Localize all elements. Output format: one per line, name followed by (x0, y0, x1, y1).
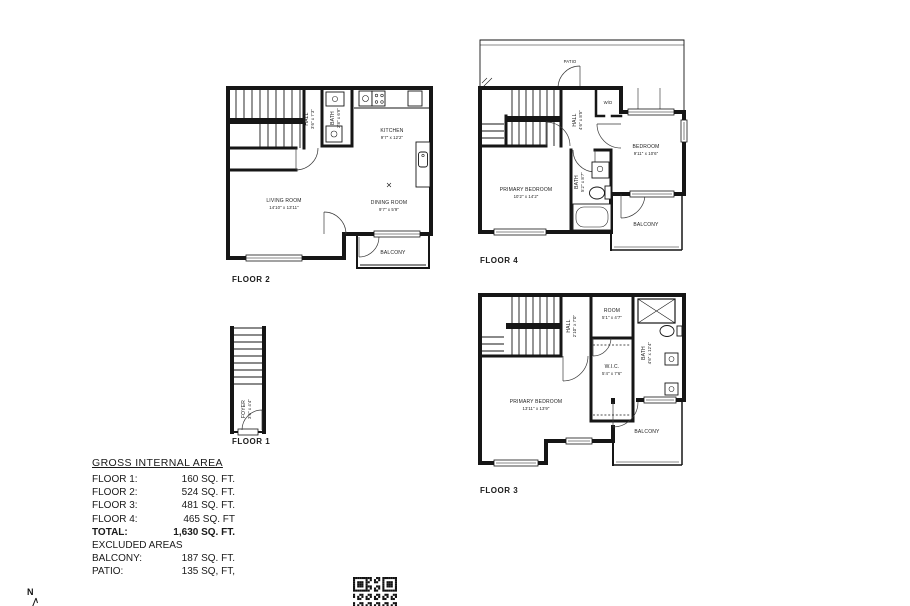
north-label: N (27, 587, 34, 597)
floor2-dining-room-dims: 9'7" x 5'9" (379, 207, 399, 212)
gross-internal-area-table: GROSS INTERNAL AREA FLOOR 1: 160 SQ. FT.… (92, 457, 235, 579)
area-row-value: 481 SQ. FT. (182, 499, 235, 512)
floor3-shower (638, 299, 675, 323)
area-table-title: GROSS INTERNAL AREA (92, 457, 223, 469)
floor1-windows (238, 429, 258, 435)
area-row-value: 524 SQ. FT. (182, 486, 235, 499)
area-row-label: BALCONY: (92, 552, 142, 565)
excluded-areas-heading: EXCLUDED AREAS (92, 539, 235, 552)
floor3-doors (563, 338, 638, 427)
floor4-bedroom-dims: 9'11" x 10'6" (634, 151, 659, 156)
floor1-room-labels: FOYER 3'6" x 4'4" (241, 399, 252, 419)
area-row-label: PATIO: (92, 565, 123, 578)
floor2-living-room-name: LIVING ROOM (266, 198, 301, 204)
floor2-dining-room-name: DINING ROOM (371, 200, 407, 206)
area-row-patio: PATIO: 135 SQ, FT, (92, 565, 235, 578)
floor3-room-dims: 5'1" x 4'7" (602, 315, 622, 320)
floor3-plan: HALL 2'10" x 7'0" ROOM 5'1" x 4'7" BATH … (478, 293, 688, 477)
area-row-floor2: FLOOR 2: 524 SQ. FT. (92, 486, 235, 499)
floor2-label: FLOOR 2 (232, 275, 270, 284)
qr-code (353, 577, 397, 606)
area-row-label: FLOOR 3: (92, 499, 138, 512)
area-row-floor4: FLOOR 4: 465 SQ. FT (92, 513, 235, 526)
area-row-value: 1,630 SQ. FT. (173, 526, 235, 539)
north-arrow-icon (29, 598, 41, 606)
floor3-label: FLOOR 3 (480, 486, 518, 495)
floor3-primary-bedroom-name: PRIMARY BEDROOM (510, 399, 563, 405)
floor4-primary-bedroom-dims: 10'2" x 14'2" (514, 194, 539, 199)
area-row-value: 465 SQ. FT (183, 513, 235, 526)
floor4-patio-name: PATIO (564, 59, 577, 64)
area-row-total: TOTAL: 1,630 SQ. FT. (92, 526, 235, 539)
area-row-value: 135 SQ, FT, (182, 565, 235, 578)
floor4-wd-name: W/D (604, 100, 613, 105)
floor4-bath-dims: 5'2" x 8'7" (580, 172, 585, 192)
floor1-foyer-dims: 3'6" x 4'4" (247, 399, 252, 419)
floor1-stairs (234, 335, 262, 384)
floor2-kitchen-name: KITCHEN (380, 128, 403, 134)
area-row-label: FLOOR 4: (92, 513, 138, 526)
floor3-wic-dims: 5'4" x 7'6" (602, 371, 622, 376)
floor3-wic-rods (593, 345, 631, 415)
floor4-balcony-name: BALCONY (633, 222, 659, 228)
floor3-bath-dims: 4'6" x 12'4" (647, 341, 652, 364)
floor2-living-room-dims: 14'10" x 13'11" (269, 205, 299, 210)
floor2-bath-dims: 2'8" x 6'9" (336, 108, 341, 128)
floor1-plan: FOYER 3'6" x 4'4" (228, 326, 270, 438)
floor3-room-name: ROOM (604, 308, 620, 314)
floor3-hall-dims: 2'10" x 7'0" (572, 314, 577, 337)
floor2-balcony-name: BALCONY (380, 250, 406, 256)
floor3-primary-bedroom-dims: 13'11" x 13'9" (522, 406, 549, 411)
floor4-bath-fixtures (573, 162, 611, 230)
area-row-value: 187 SQ. FT. (182, 552, 235, 565)
floor2-doors (296, 148, 379, 257)
floor2-kitchen-dims: 9'7" x 12'2" (381, 135, 404, 140)
floor4-patio (480, 40, 684, 112)
floorplan-page: HALL 3'6" x 7'3" BATH 2'8" x 6'9" KITCHE… (0, 0, 910, 606)
area-row-balcony: BALCONY: 187 SQ. FT. (92, 552, 235, 565)
area-row-floor1: FLOOR 1: 160 SQ. FT. (92, 473, 235, 486)
floor4-bedroom-name: BEDROOM (632, 144, 659, 150)
floor4-primary-bedroom-name: PRIMARY BEDROOM (500, 187, 553, 193)
floor1-label: FLOOR 1 (232, 437, 270, 446)
area-row-label: FLOOR 1: (92, 473, 138, 486)
floor3-bath-fixtures (660, 326, 682, 396)
floor3-balcony-name: BALCONY (634, 429, 660, 435)
floor4-label: FLOOR 4 (480, 256, 518, 265)
floor2-hall-dims: 3'6" x 7'3" (310, 109, 315, 129)
floor2-plan: HALL 3'6" x 7'3" BATH 2'8" x 6'9" KITCHE… (226, 82, 434, 274)
floor4-room-labels: PATIO W/D HALL 4'6" x 8'5" BEDROOM 9'11"… (500, 59, 660, 228)
floor4-hall-dims: 4'6" x 8'5" (578, 110, 583, 130)
floor4-plan: PATIO W/D HALL 4'6" x 8'5" BEDROOM 9'11"… (478, 36, 688, 254)
area-row-floor3: FLOOR 3: 481 SQ. FT. (92, 499, 235, 512)
area-row-value: 160 SQ. FT. (182, 473, 235, 486)
area-row-label: FLOOR 2: (92, 486, 138, 499)
floor3-wic-name: W.I.C. (605, 364, 620, 370)
area-row-label: TOTAL: (92, 526, 128, 539)
